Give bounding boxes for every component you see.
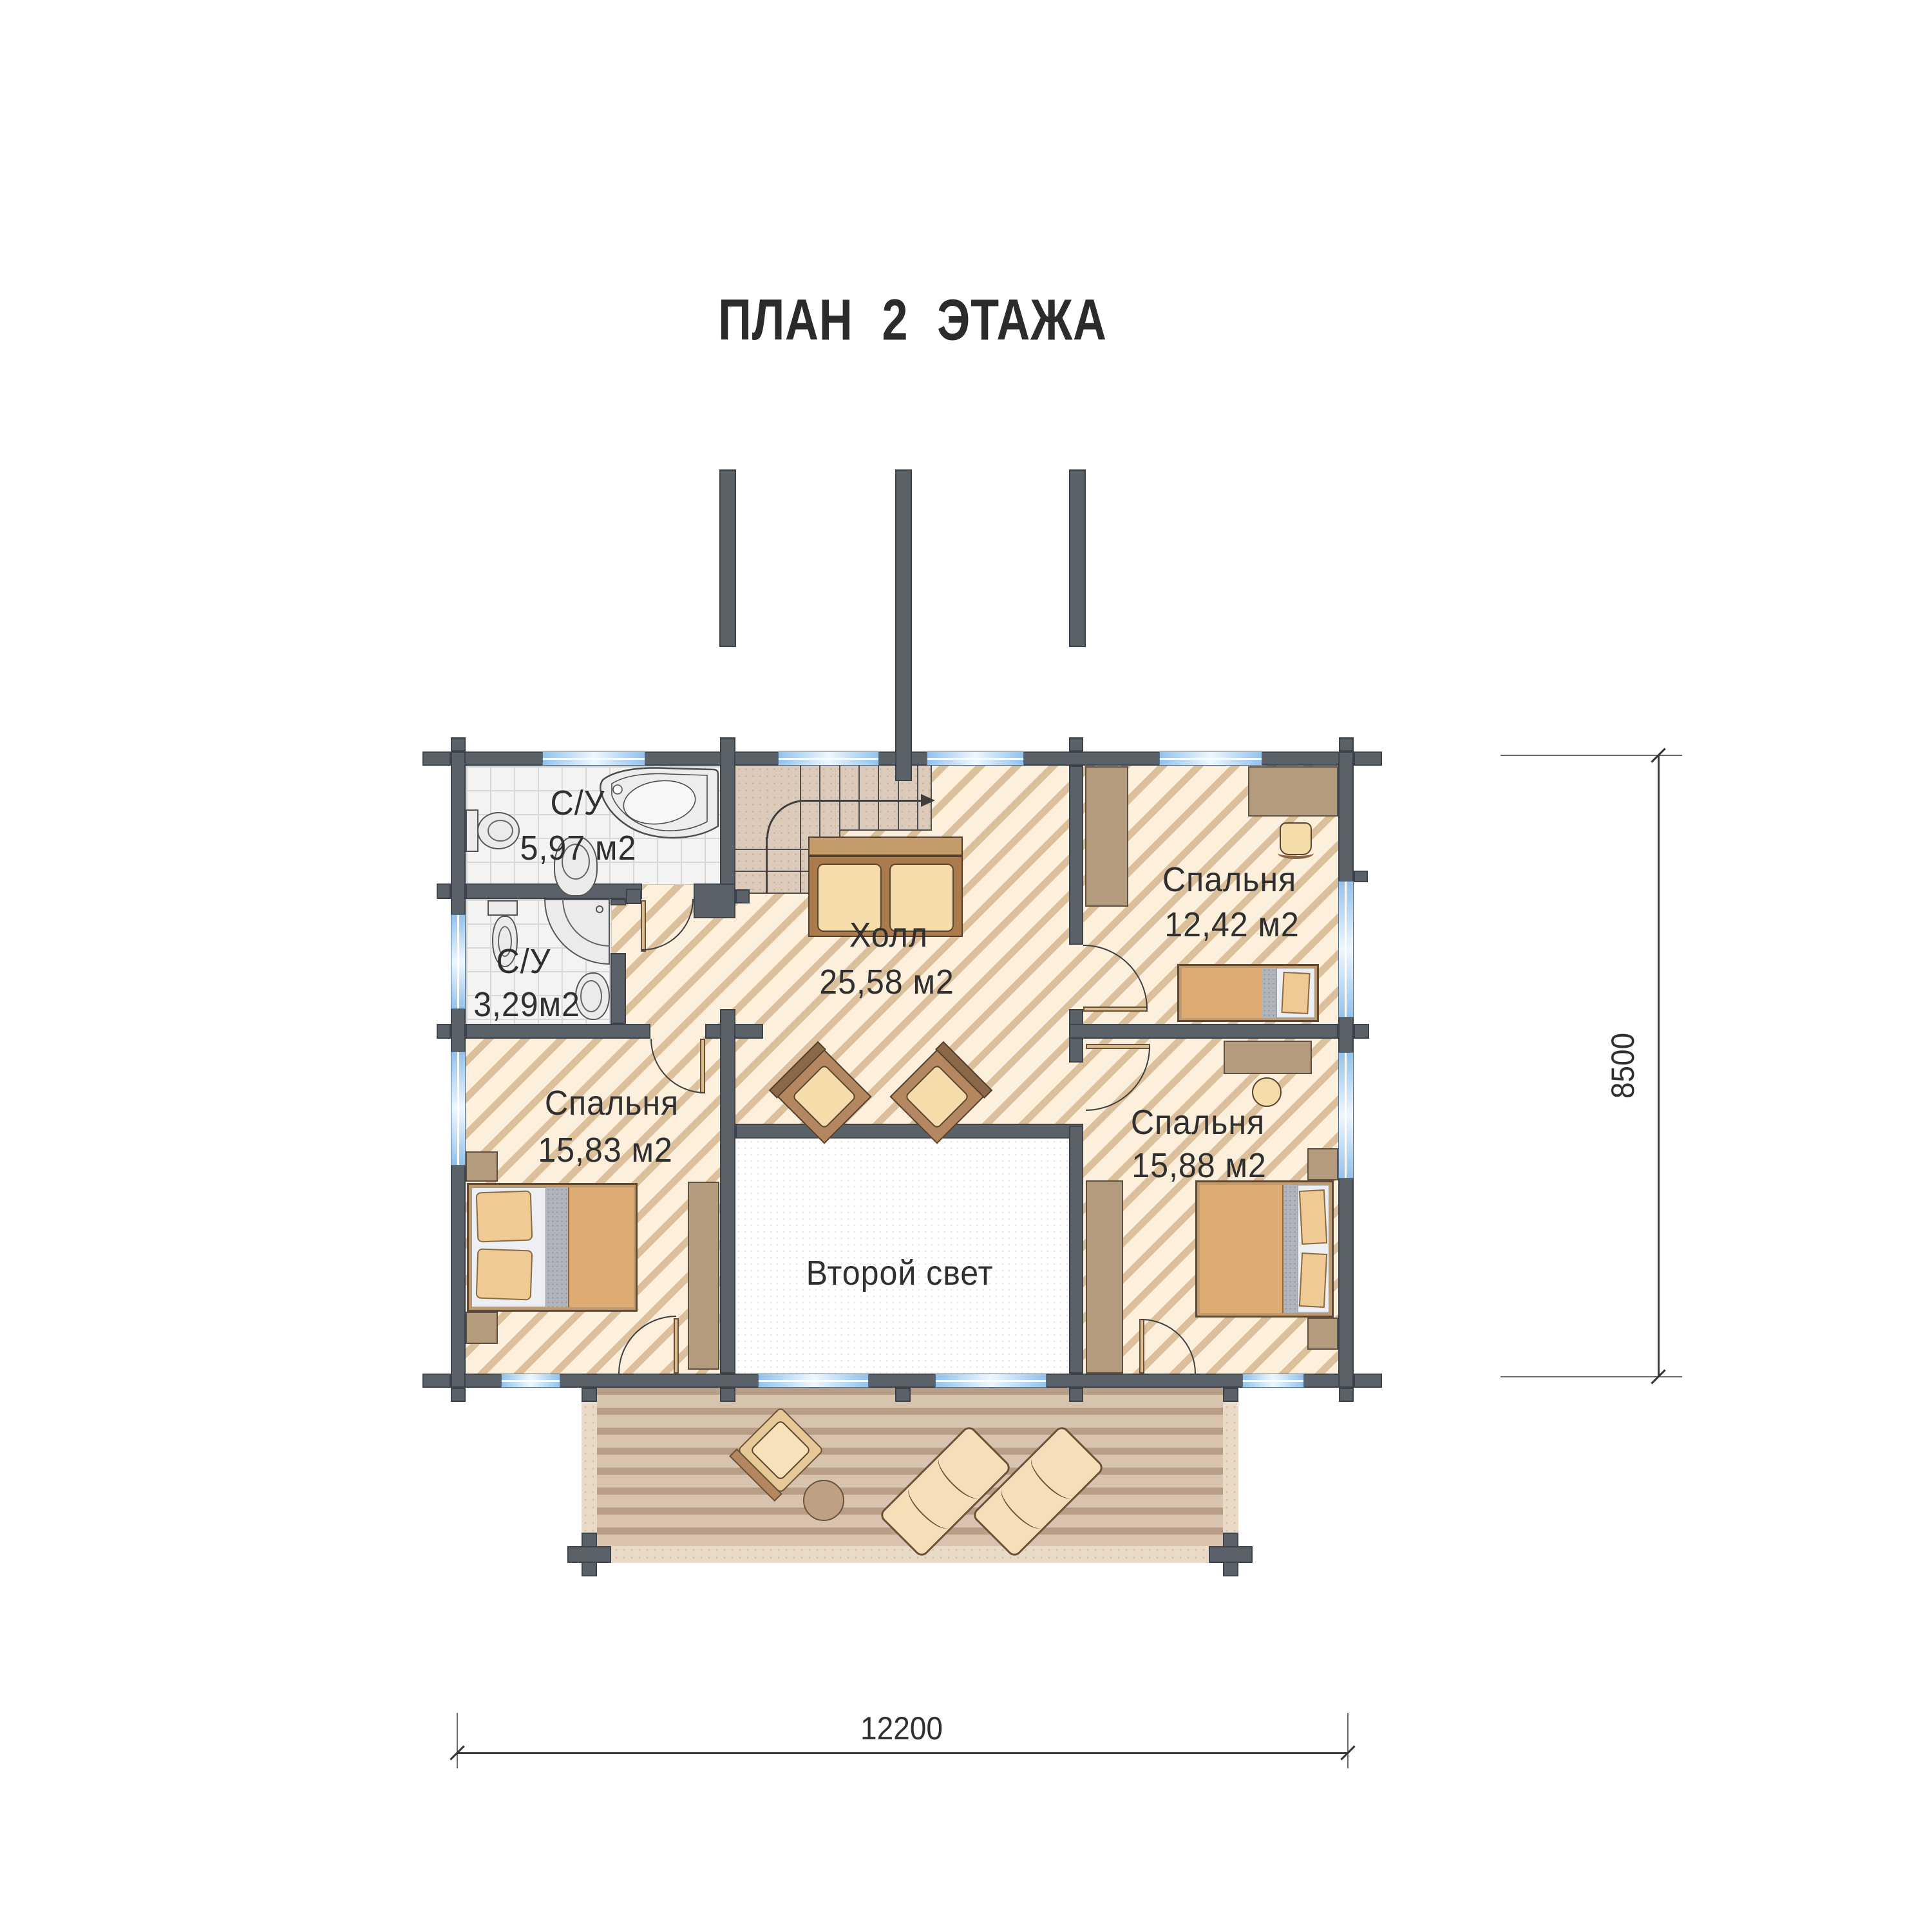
nightstand bbox=[1307, 1148, 1338, 1180]
window bbox=[778, 751, 879, 766]
log-stub bbox=[1069, 737, 1083, 751]
log-stub bbox=[422, 751, 451, 766]
stair-walkline bbox=[766, 837, 768, 894]
window bbox=[501, 1374, 560, 1388]
wardrobe bbox=[1085, 766, 1128, 907]
terrace-post bbox=[567, 1546, 611, 1563]
pillow bbox=[1299, 1252, 1327, 1308]
log-stub bbox=[720, 1388, 735, 1402]
room-label-second-light: Второй свет bbox=[806, 1253, 994, 1293]
log-stub bbox=[1354, 1374, 1382, 1388]
bed-blanket bbox=[568, 1187, 634, 1307]
terrace-post bbox=[582, 1388, 597, 1402]
wall-exterior-bottom bbox=[451, 1374, 1354, 1388]
lounger-seam bbox=[1025, 1451, 1078, 1504]
stair-tread bbox=[878, 766, 879, 829]
room-label-bath2-name: С/У bbox=[497, 941, 551, 981]
window bbox=[542, 751, 645, 766]
bed-blanket bbox=[1182, 968, 1262, 1018]
stair-walkline bbox=[804, 800, 922, 802]
wardrobe bbox=[688, 1182, 719, 1370]
wall-second-light-top bbox=[735, 1124, 1083, 1139]
wall-bath1-bottom bbox=[466, 884, 642, 899]
roof-post-middle bbox=[895, 469, 912, 781]
wardrobe bbox=[1086, 1180, 1123, 1374]
log-stub bbox=[437, 884, 451, 899]
log-stub bbox=[451, 737, 466, 751]
pillow bbox=[1299, 1189, 1327, 1245]
log-stub bbox=[1354, 1024, 1369, 1039]
terrace-edge-left bbox=[582, 1388, 597, 1546]
bed-blanket bbox=[1200, 1185, 1283, 1313]
room-label-bedroom-left-area: 15,83 м2 bbox=[538, 1130, 673, 1170]
wall-bedroom-left-top bbox=[466, 1024, 650, 1039]
room-label-bath1-area: 5,97 м2 bbox=[520, 828, 637, 868]
window bbox=[1242, 1374, 1304, 1388]
window bbox=[1159, 751, 1262, 766]
log-stub bbox=[895, 1388, 911, 1402]
window bbox=[451, 1052, 466, 1166]
room-label-bath2-area: 3,29м2 bbox=[473, 985, 580, 1025]
log-stub bbox=[437, 1024, 451, 1039]
roof-post-right bbox=[1069, 469, 1086, 647]
desk bbox=[1248, 766, 1338, 817]
log-stub bbox=[1354, 751, 1382, 766]
window bbox=[927, 751, 1024, 766]
extension-line bbox=[1501, 1376, 1682, 1377]
log-stub bbox=[1339, 1388, 1354, 1402]
terrace-edge-bottom bbox=[597, 1546, 1223, 1563]
extension-line bbox=[1347, 1713, 1349, 1768]
wall-bath1-corner-post bbox=[694, 884, 735, 918]
extension-line bbox=[1501, 755, 1682, 756]
double-bed bbox=[467, 1183, 638, 1312]
window bbox=[758, 1374, 869, 1388]
wall-bedrooms-divider bbox=[1069, 1024, 1338, 1039]
room-label-bath1-name: С/У bbox=[551, 783, 605, 823]
sofa-back bbox=[808, 836, 963, 856]
desk bbox=[1224, 1041, 1312, 1074]
room-label-bedroom-br-name: Спальня bbox=[1131, 1102, 1265, 1142]
bed-fold-strip bbox=[546, 1187, 568, 1307]
terrace-post bbox=[1209, 1546, 1253, 1563]
bed-fold-strip bbox=[1283, 1185, 1298, 1313]
terrace-post bbox=[1223, 1388, 1238, 1402]
double-bed bbox=[1195, 1180, 1334, 1318]
log-stub bbox=[1069, 1388, 1083, 1402]
nightstand bbox=[1307, 1318, 1338, 1350]
lounger-seam bbox=[933, 1451, 985, 1504]
extension-line bbox=[457, 1713, 458, 1768]
roof-post-left bbox=[719, 469, 736, 647]
log-stub bbox=[1354, 871, 1368, 882]
lounger-seam bbox=[996, 1481, 1048, 1534]
log-stub bbox=[1339, 737, 1354, 751]
room-label-bedroom-br-area: 15,88 м2 bbox=[1132, 1146, 1267, 1186]
stair-edge bbox=[839, 829, 931, 831]
window bbox=[935, 1374, 1046, 1388]
dimension-line-bottom bbox=[457, 1752, 1348, 1754]
nightstand bbox=[466, 1151, 498, 1182]
wall-second-light-left bbox=[720, 1009, 735, 1374]
nightstand bbox=[466, 1312, 498, 1344]
dimension-label-right: 8500 bbox=[1604, 1033, 1642, 1099]
desk-chair-back bbox=[1278, 847, 1314, 859]
room-label-hall-area: 25,58 м2 bbox=[819, 962, 954, 1002]
wall-second-light-right bbox=[1069, 1126, 1083, 1374]
stair-tread bbox=[917, 766, 918, 829]
floor-plan-page: ПЛАН 2 ЭТАЖА bbox=[0, 0, 1932, 1928]
dimension-line-right bbox=[1658, 755, 1660, 1377]
terrace-edge-right bbox=[1223, 1388, 1238, 1546]
pillow bbox=[476, 1249, 533, 1301]
dimension-label-bottom: 12200 bbox=[860, 1710, 943, 1747]
page-title: ПЛАН 2 ЭТАЖА bbox=[718, 288, 1107, 354]
window bbox=[451, 914, 466, 1009]
stair-direction-arrow bbox=[921, 794, 935, 807]
log-stub bbox=[422, 1374, 451, 1388]
terrace-side-table bbox=[803, 1480, 844, 1521]
lounger-seam bbox=[903, 1481, 956, 1534]
toilet-bowl-inner bbox=[488, 820, 513, 842]
log-stub bbox=[735, 889, 750, 903]
window bbox=[1338, 1052, 1354, 1178]
room-label-bedroom-left-name: Спальня bbox=[545, 1083, 679, 1123]
toilet-tank bbox=[466, 809, 478, 852]
stair-tread bbox=[858, 766, 860, 829]
sink-inner bbox=[580, 980, 602, 1012]
bed-fold-strip bbox=[1262, 968, 1276, 1018]
toilet-tank bbox=[488, 900, 518, 916]
room-label-bedroom-tr-name: Спальня bbox=[1162, 860, 1296, 900]
wall-stub-corridor bbox=[626, 889, 641, 904]
window bbox=[1338, 881, 1354, 1017]
wall-bath2-right-lower bbox=[611, 953, 626, 1024]
wall-bath2-right-upper bbox=[611, 899, 626, 905]
room-label-bedroom-tr-area: 12,42 м2 bbox=[1164, 905, 1300, 945]
shower-drain bbox=[596, 905, 603, 913]
single-bed bbox=[1177, 964, 1319, 1022]
pillow bbox=[476, 1191, 533, 1243]
room-label-hall-name: Холл bbox=[849, 915, 928, 955]
wall-hall-bedroom-right bbox=[1069, 766, 1083, 945]
pillow bbox=[1281, 972, 1310, 1014]
log-stub bbox=[451, 1388, 466, 1402]
